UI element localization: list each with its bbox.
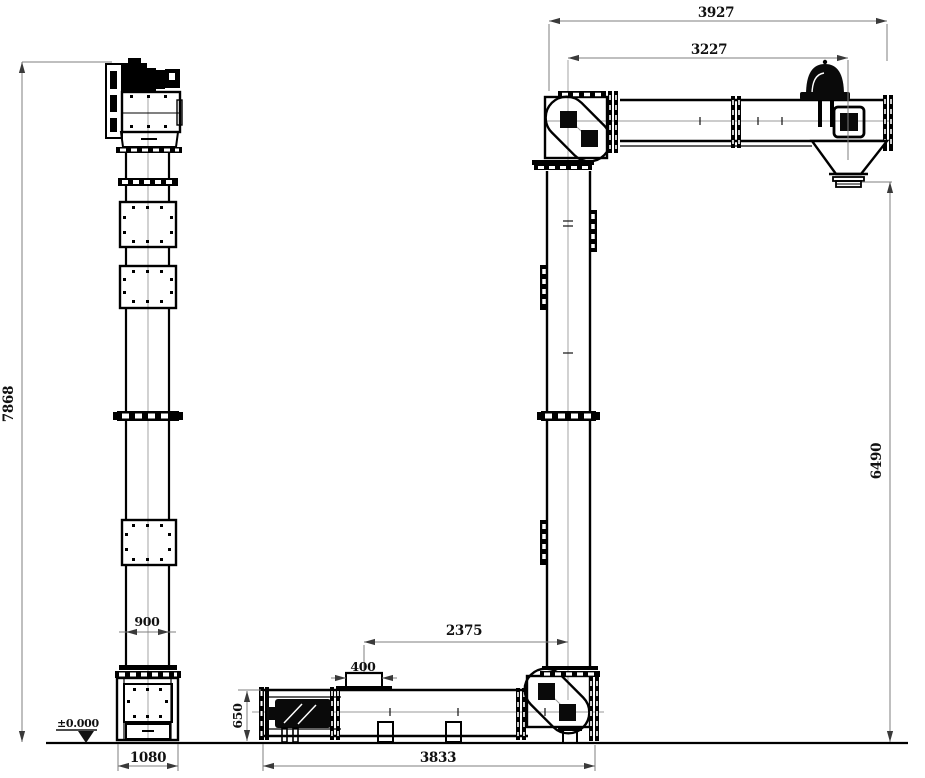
drawing-canvas: 7868 900 1080 ±0.000 3927 [0, 0, 925, 778]
dim-casing-width: 900 [119, 614, 176, 632]
top-horizontal-conveyor [620, 60, 893, 187]
riser-bracket-left-upper [540, 265, 548, 310]
dim-3927-label: 3927 [698, 5, 734, 21]
top-corner-section [537, 88, 619, 170]
discharge-hopper [812, 141, 887, 187]
dim-1080-label: 1080 [130, 750, 166, 766]
dim-3833-label: 3833 [420, 750, 456, 766]
technical-drawing: 7868 900 1080 ±0.000 3927 [0, 0, 925, 778]
bottom-horizontal-conveyor [259, 673, 528, 742]
sprocket-block [559, 704, 576, 721]
inspection-panel-3 [122, 520, 176, 565]
tail-drive-motor-icon [267, 699, 331, 728]
dim-riser-height: 6490 [862, 182, 892, 742]
boot-bolts [127, 688, 168, 718]
corner-housing [527, 676, 590, 727]
bucket-elevator-view [106, 58, 183, 740]
sprocket-block [538, 683, 555, 700]
level-marker: ±0.000 [56, 717, 100, 743]
dim-650-label: 650 [230, 703, 245, 729]
feed-inlet [336, 673, 392, 691]
tail-flange-joint [330, 687, 340, 740]
corner-right-flange [589, 677, 599, 741]
sprocket-block [560, 111, 577, 128]
dim-7868-label: 7868 [1, 386, 17, 422]
head-motor-icon [123, 58, 180, 93]
level-label: ±0.000 [57, 717, 100, 730]
casing-flange-joint-upper [118, 178, 178, 186]
riser-bracket-right [589, 210, 597, 252]
head-plate-slots [110, 71, 117, 132]
dim-400-label: 400 [350, 659, 376, 674]
elevator-casing [126, 153, 169, 667]
casing-flange-joint-mid [113, 411, 183, 421]
corner-right-flange [608, 91, 618, 153]
corner-top-flange [540, 666, 600, 677]
dim-overall-height: 7868 [1, 62, 112, 742]
corner-bottom-stub [558, 727, 582, 743]
level-triangle-icon [78, 731, 94, 743]
dim-2375-label: 2375 [446, 623, 482, 639]
dim-6490-label: 6490 [869, 443, 885, 479]
inspection-window [834, 107, 864, 137]
dim-inlet-width: 400 [331, 659, 397, 678]
dim-900-label: 900 [134, 614, 160, 629]
elevator-head-drive [106, 58, 182, 153]
dim-boot-width: 1080 [118, 744, 178, 771]
riser-flange-joint [537, 411, 600, 421]
sprocket-block [581, 130, 598, 147]
dim-inlet-to-riser: 2375 [364, 623, 568, 672]
vertical-riser [532, 160, 600, 667]
dim-trough-height: 650 [230, 690, 261, 741]
head-bolts [130, 95, 167, 128]
centerlines [148, 60, 892, 741]
dim-3227-label: 3227 [691, 42, 727, 58]
riser-bracket-left-lower [540, 520, 548, 565]
dim-bottom-overall: 3833 [263, 744, 595, 771]
